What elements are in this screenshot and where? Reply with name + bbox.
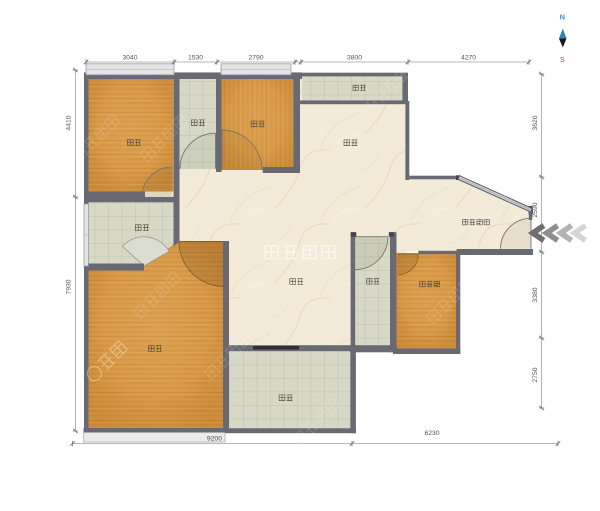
- svg-text:2590: 2590: [532, 202, 539, 217]
- svg-text:3620: 3620: [532, 115, 539, 130]
- svg-text:N: N: [560, 13, 565, 22]
- svg-text:3800: 3800: [347, 55, 362, 62]
- svg-text:9200: 9200: [207, 436, 222, 443]
- svg-text:4270: 4270: [461, 55, 476, 62]
- svg-text:7930: 7930: [66, 279, 73, 294]
- svg-text:2750: 2750: [532, 367, 539, 382]
- svg-text:2790: 2790: [248, 55, 263, 62]
- svg-text:4410: 4410: [66, 115, 73, 130]
- svg-text:6230: 6230: [424, 430, 439, 437]
- svg-text:3040: 3040: [122, 55, 137, 62]
- svg-text:1530: 1530: [188, 55, 203, 62]
- svg-text:3380: 3380: [532, 287, 539, 302]
- svg-text:S: S: [560, 57, 565, 64]
